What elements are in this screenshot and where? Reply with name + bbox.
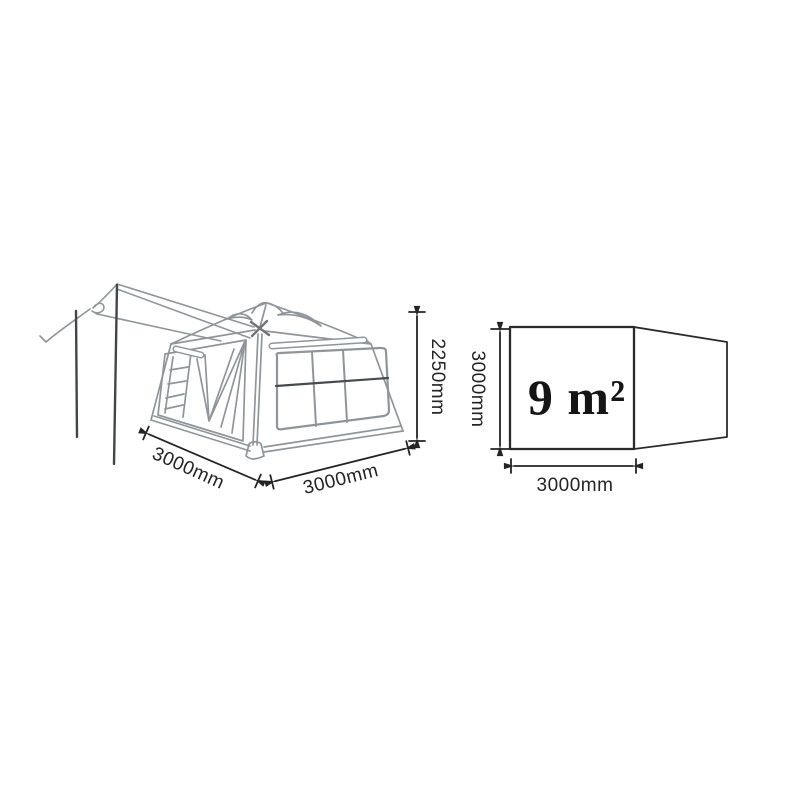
window-crossbar: [276, 378, 388, 386]
tent-height-label: 2250mm: [426, 339, 448, 416]
roof-hub-icon: [251, 321, 269, 336]
floor-plan-vestibule: [634, 327, 727, 449]
tarp-tip: [40, 336, 46, 342]
awning-pole-right: [114, 285, 117, 464]
awning-pole-left: [76, 311, 77, 437]
roof-apex: [252, 303, 283, 313]
tarp-ridge-line: [117, 284, 254, 327]
awning-poles: [76, 285, 117, 464]
right-wall-window: [277, 348, 389, 429]
tarp-fold: [92, 284, 117, 314]
plan-side-dimension: [491, 329, 509, 449]
right-wall-bottom: [264, 431, 403, 452]
awning-tarp-sketch: [40, 284, 254, 342]
plan-side-label: 3000mm: [466, 351, 488, 428]
window-frame: [277, 348, 389, 429]
window-mullions: [312, 350, 347, 426]
front-pole: [253, 334, 262, 445]
left-wall-hem: [154, 416, 250, 446]
tent-dimension-diagram: 3000mm 3000mm 2250mm 3000mm 3000mm 9 m²: [0, 0, 800, 800]
tarp-guy-line: [117, 289, 250, 338]
plan-area-label: 9 m²: [528, 368, 626, 426]
plan-width-dimension: [511, 459, 636, 473]
plan-width-label: 3000mm: [537, 475, 614, 497]
diagram-canvas: [0, 0, 800, 800]
tarp-edge: [46, 309, 90, 342]
height-dimension: [409, 312, 425, 441]
